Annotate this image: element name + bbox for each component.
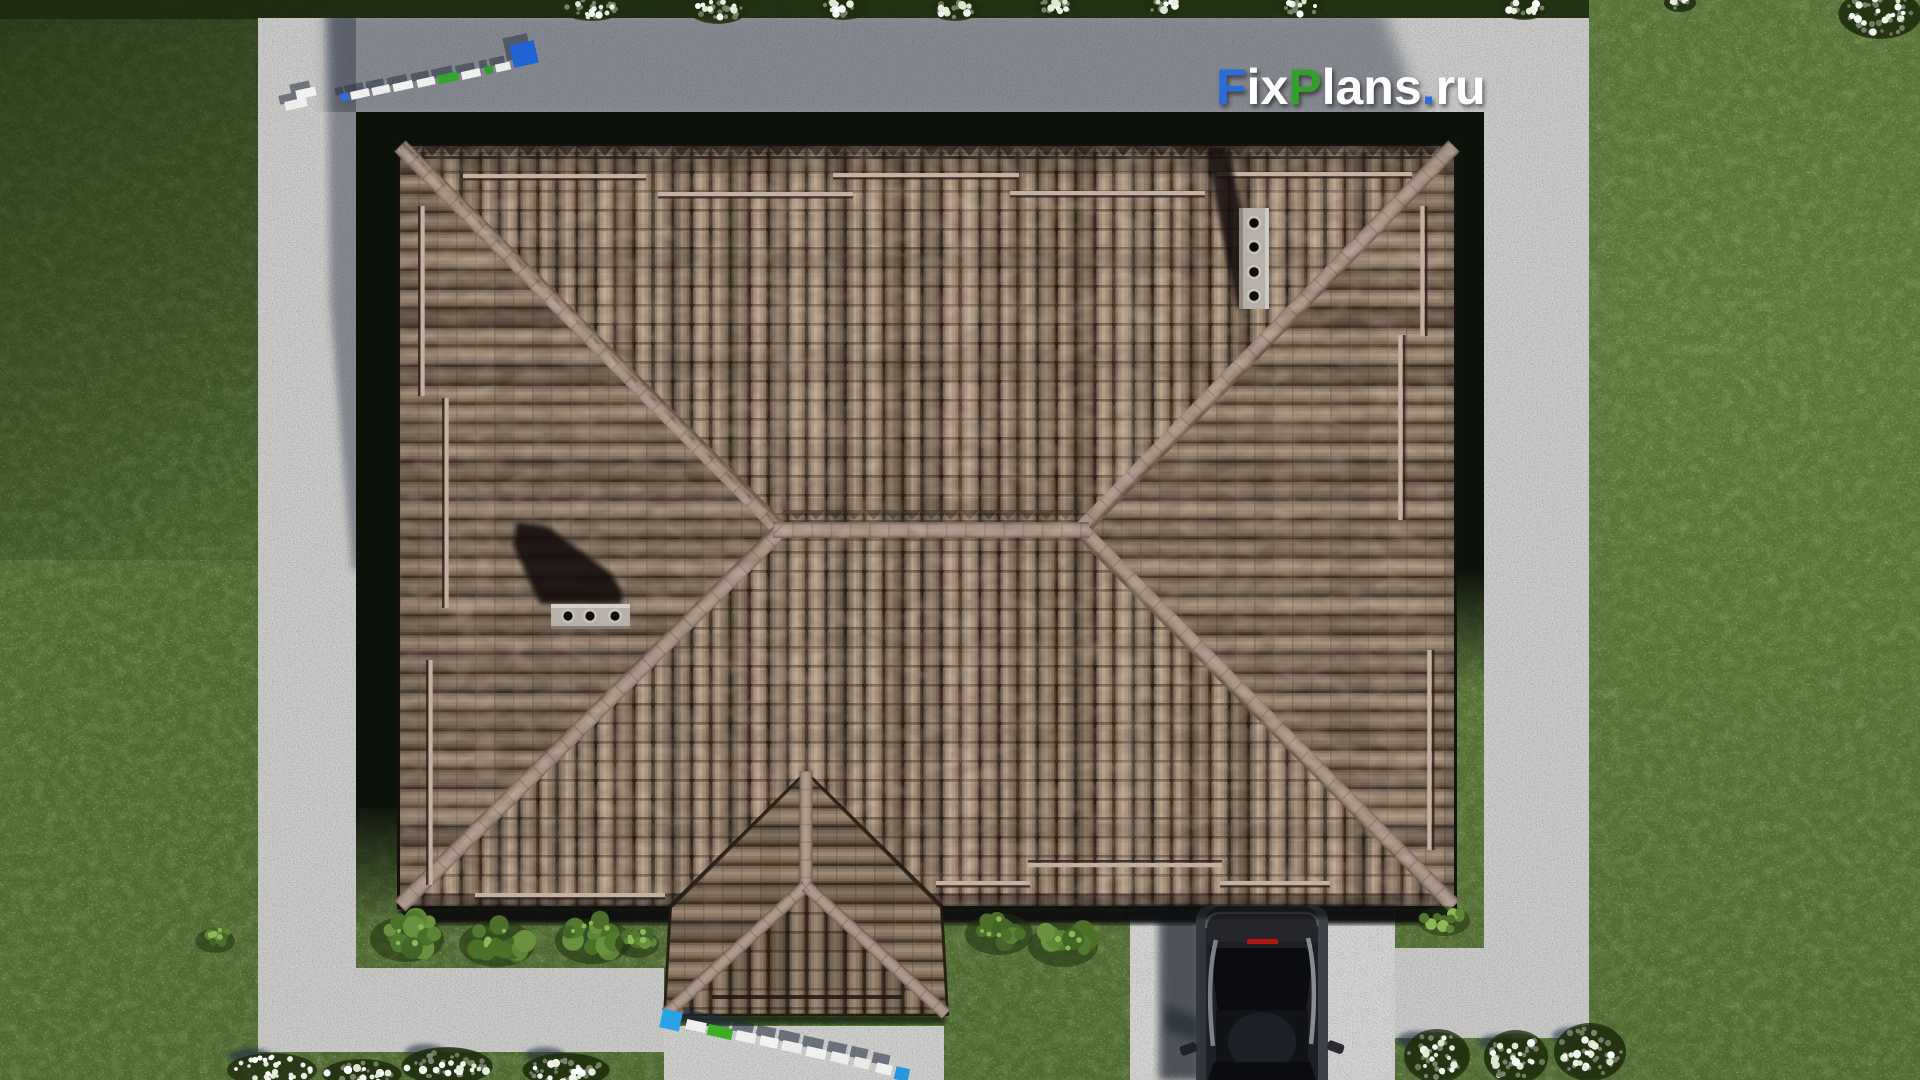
svg-text:FixPlans.ru: FixPlans.ru	[1216, 59, 1486, 115]
